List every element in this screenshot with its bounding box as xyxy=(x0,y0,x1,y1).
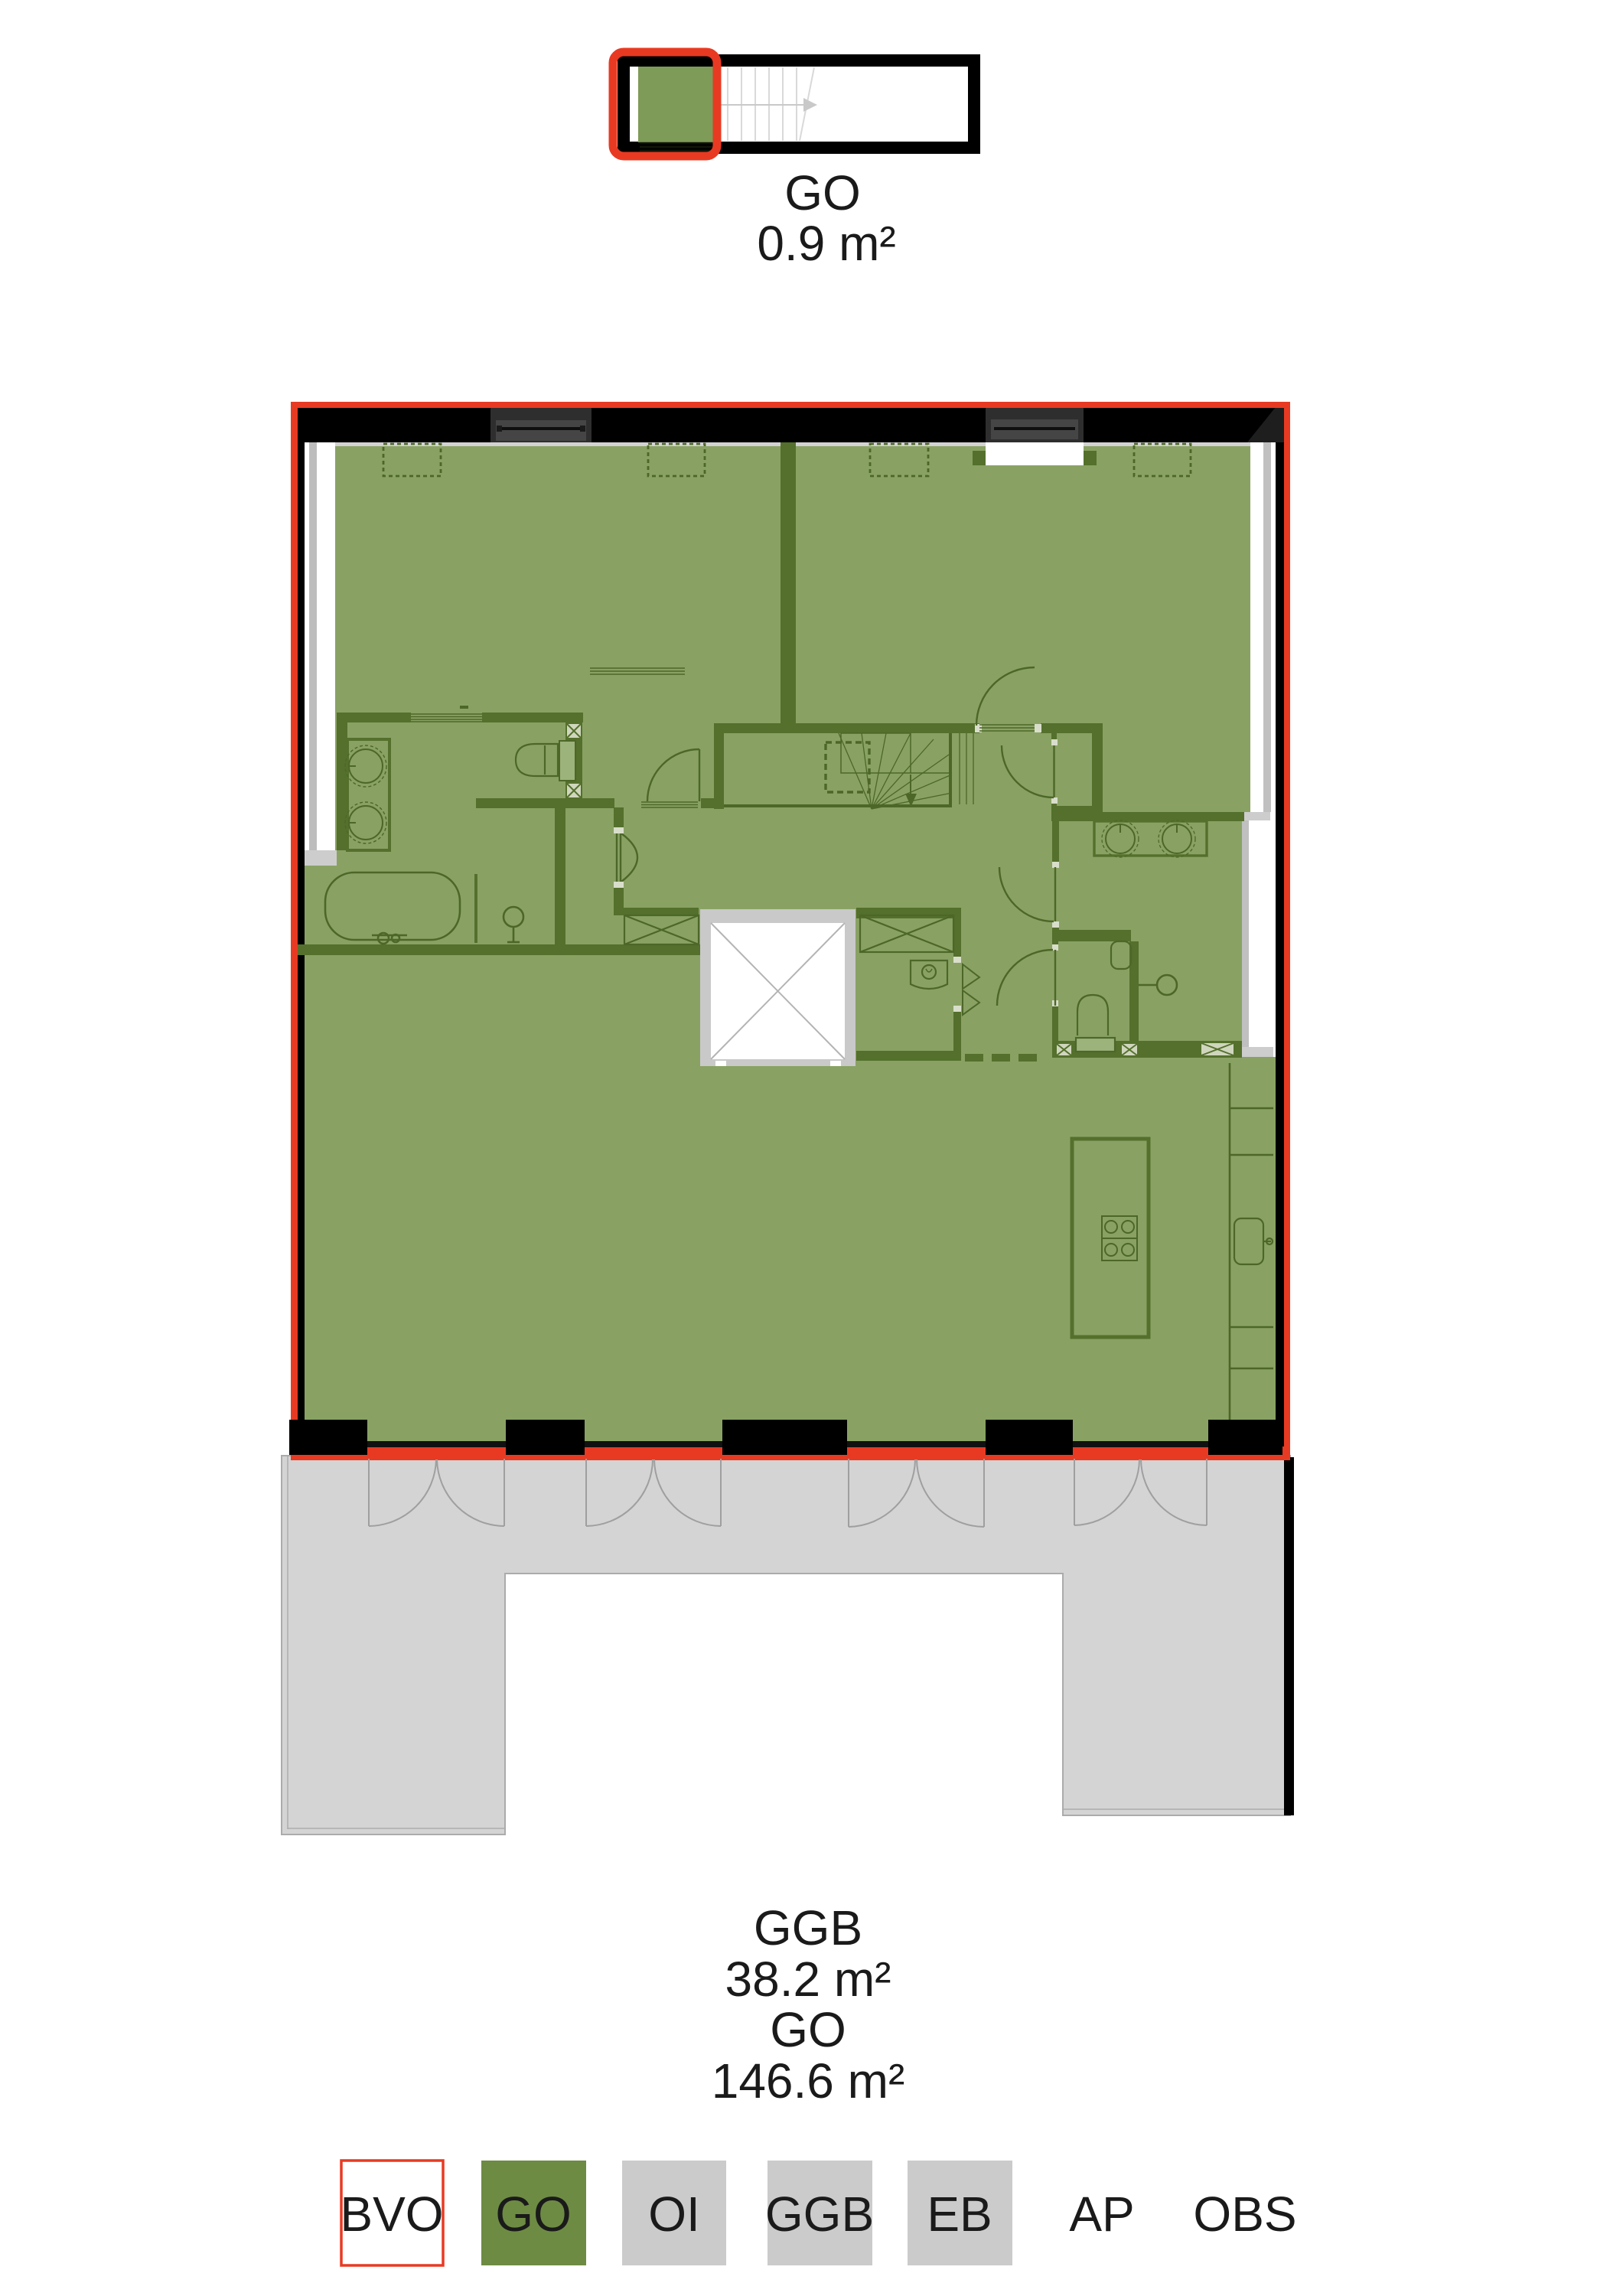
svg-text:GO: GO xyxy=(770,2002,846,2057)
svg-text:GO: GO xyxy=(495,2187,572,2242)
svg-text:EB: EB xyxy=(927,2187,992,2242)
svg-text:146.6 m²: 146.6 m² xyxy=(712,2053,905,2108)
svg-text:GGB: GGB xyxy=(754,1900,862,1955)
svg-text:AP: AP xyxy=(1069,2187,1134,2242)
svg-text:BVO: BVO xyxy=(340,2187,443,2242)
svg-text:OBS: OBS xyxy=(1193,2187,1296,2242)
svg-text:OI: OI xyxy=(648,2187,700,2242)
svg-text:0.9 m²: 0.9 m² xyxy=(757,216,895,271)
svg-text:38.2 m²: 38.2 m² xyxy=(725,1952,891,2007)
svg-text:GGB: GGB xyxy=(765,2187,874,2242)
svg-text:GO: GO xyxy=(784,165,861,220)
